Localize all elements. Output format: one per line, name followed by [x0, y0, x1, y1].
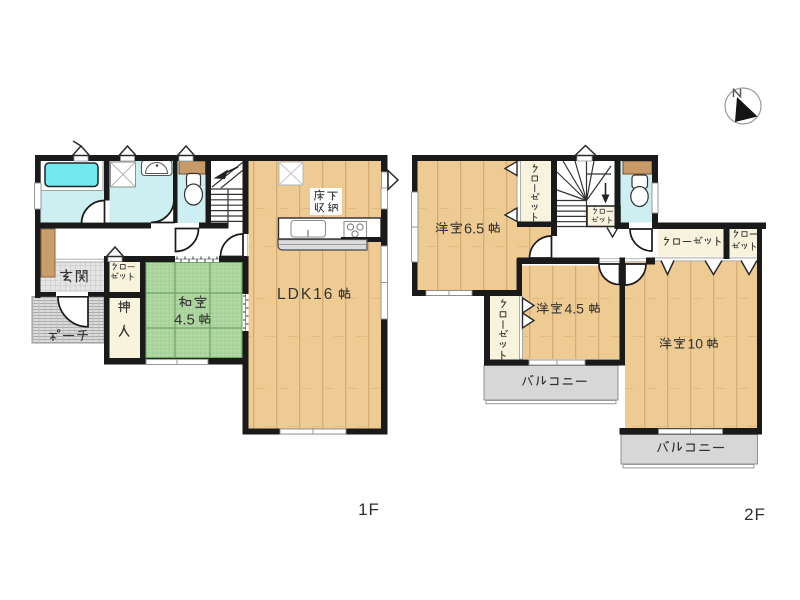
svg-text:1F: 1F	[358, 500, 380, 519]
svg-text:4.5: 4.5	[565, 301, 585, 317]
svg-text:2F: 2F	[744, 505, 766, 524]
svg-text:4.5: 4.5	[174, 312, 195, 329]
svg-text:10: 10	[688, 336, 704, 352]
svg-text:LDK16: LDK16	[277, 286, 334, 303]
svg-text:6.5: 6.5	[464, 222, 484, 238]
